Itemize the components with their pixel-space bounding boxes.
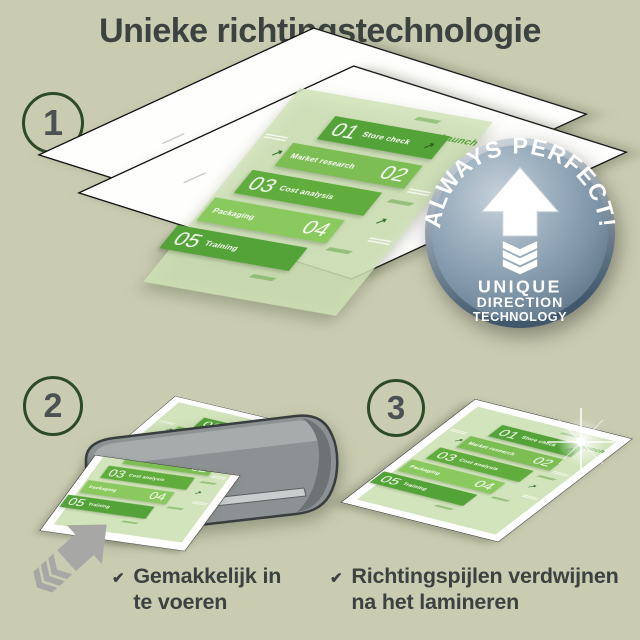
watermark-mark <box>199 481 217 485</box>
caption-line: te voeren <box>133 590 227 614</box>
fine-print-lines <box>193 501 208 504</box>
watermark-mark <box>413 117 441 124</box>
faint-print-mark <box>161 133 185 144</box>
step-label: Packaging <box>210 207 257 222</box>
badge-line-technology: TECHNOLOGY <box>473 310 567 324</box>
step-number: 05 <box>167 226 209 253</box>
caption-line: na het lamineren <box>351 590 519 614</box>
watermark-mark <box>249 274 277 281</box>
step-label: Market research <box>467 441 517 456</box>
caption-line: Richtingspijlen verdwijnen <box>351 564 618 588</box>
step-number: 03 <box>241 171 283 198</box>
step-label: Packaging <box>408 464 442 475</box>
step-label: Cost analysis <box>457 458 500 471</box>
watermark-mark <box>166 506 184 510</box>
shine-sparkle-icon <box>545 406 617 483</box>
step-label: Cost analysis <box>277 184 336 201</box>
caption-text: Richtingspijlen verdwijnen na het lamine… <box>351 563 618 615</box>
step-number: 01 <box>324 117 366 144</box>
direction-arrow-icon: ↗ <box>525 483 539 490</box>
step-3-number-circle: 3 <box>367 379 425 437</box>
step-label: Training <box>202 239 240 252</box>
direction-arrow-icon: ↗ <box>193 489 204 496</box>
watermark-mark <box>386 199 414 206</box>
fine-print-lines <box>212 476 227 479</box>
infographic-canvas: Unieke richtingstechnologie 1 ↗ ↗ ↗ Laun… <box>0 0 640 640</box>
feed-arrow-icon <box>24 508 124 605</box>
step-number: 02 <box>374 161 415 186</box>
direction-arrow-icon: ↗ <box>372 214 391 227</box>
step-label: Store check <box>360 130 413 146</box>
step-label: Packaging <box>88 485 118 493</box>
fine-print-lines <box>451 429 467 434</box>
caption-arrows-disappear: ✔ Richtingspijlen verdwijnen na het lami… <box>330 563 619 615</box>
step-label: Training <box>401 482 429 491</box>
fine-print-lines <box>369 237 391 242</box>
step-number: 03 <box>105 466 130 480</box>
fine-print-lines <box>523 494 539 499</box>
step-number: 04 <box>296 216 337 241</box>
step-number: 04 <box>146 490 170 503</box>
step-number: 04 <box>469 478 499 492</box>
watermark-mark <box>490 496 511 501</box>
watermark-mark <box>434 505 455 510</box>
step-label: Cost analysis <box>127 473 165 482</box>
step-label: Market research <box>288 152 358 171</box>
watermark-mark <box>325 247 353 254</box>
badge-line-direction: DIRECTION <box>477 294 564 310</box>
always-perfect-badge: ALWAYS PERFECT! UNIQUE DIRECTION TECHNOL… <box>424 137 616 334</box>
fine-print-lines <box>266 133 288 138</box>
faint-print-mark <box>183 172 207 183</box>
